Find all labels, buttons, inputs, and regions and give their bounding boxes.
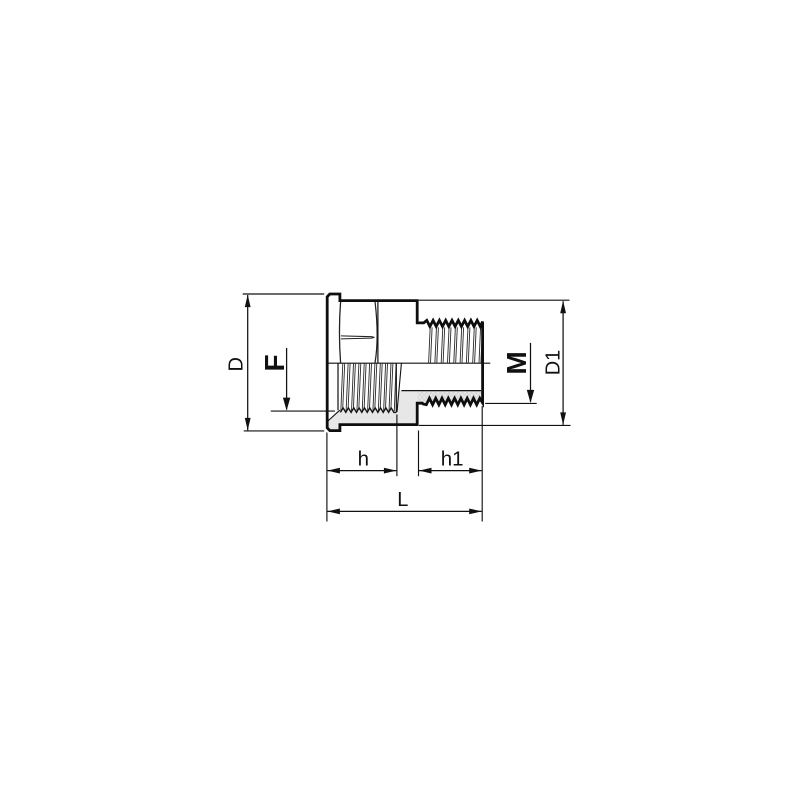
svg-text:D1: D1 [543,350,565,376]
svg-text:h1: h1 [441,447,464,470]
svg-text:F: F [259,354,290,371]
svg-text:M: M [501,351,532,374]
svg-text:h: h [358,447,369,470]
svg-text:L: L [397,489,408,511]
svg-text:D: D [225,357,247,371]
